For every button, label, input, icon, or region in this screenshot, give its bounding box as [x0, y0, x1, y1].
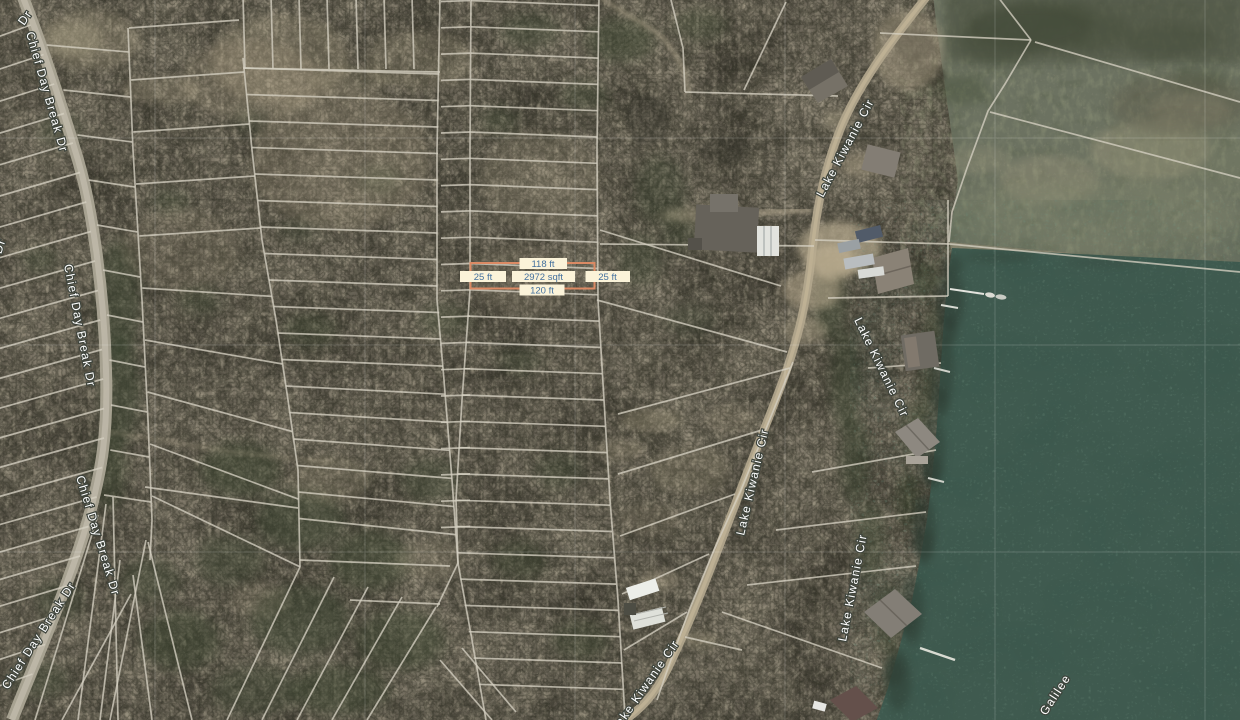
- svg-text:2972 sqft: 2972 sqft: [524, 272, 563, 283]
- svg-text:25 ft: 25 ft: [598, 272, 617, 283]
- svg-text:118 ft: 118 ft: [531, 259, 554, 270]
- svg-text:25 ft: 25 ft: [474, 272, 493, 283]
- svg-text:120 ft: 120 ft: [530, 285, 554, 296]
